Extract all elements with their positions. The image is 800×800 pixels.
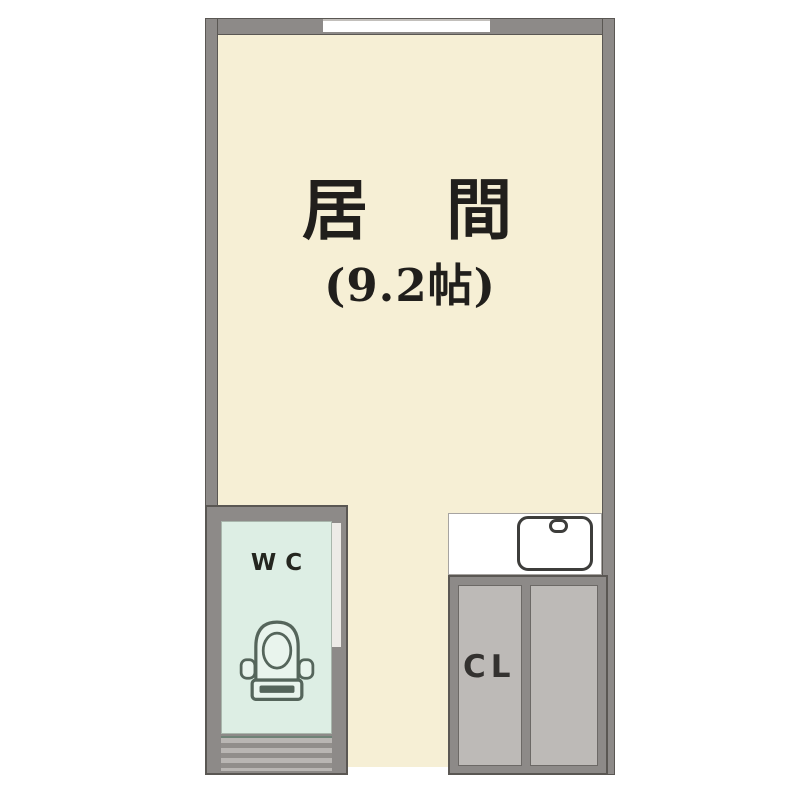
wc-label: WC [222, 550, 331, 576]
apartment-floorplan: 居 間 (9.2帖) WC CL [205, 18, 615, 775]
wc-floor: WC [221, 521, 332, 734]
closet-label: CL [463, 649, 516, 685]
closet-door-right [530, 585, 598, 766]
living-room-size: (9.2帖) [218, 249, 602, 314]
wc-room: WC [205, 505, 348, 775]
toilet-icon [231, 610, 323, 705]
wc-door [332, 523, 341, 647]
faucet-icon [549, 519, 568, 533]
living-room-label: 居 間 (9.2帖) [218, 176, 602, 314]
sink-counter [448, 513, 602, 575]
sink-icon [517, 516, 593, 571]
wc-sliding-door [221, 736, 332, 771]
living-room-name: 居 間 [218, 176, 602, 245]
window-top [323, 19, 490, 34]
closet: CL [448, 575, 608, 775]
